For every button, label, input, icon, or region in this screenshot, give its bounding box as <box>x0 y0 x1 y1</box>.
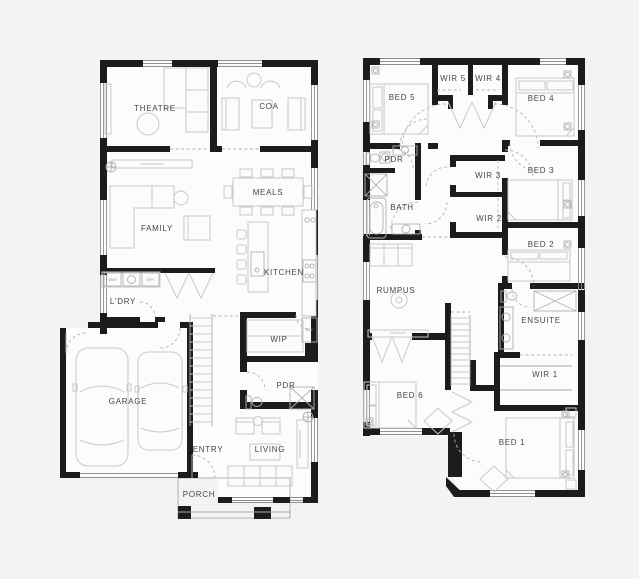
room-label-rumpus: RUMPUS <box>377 286 416 295</box>
room-label-theatre: THEATRE <box>134 104 176 113</box>
room-label-laundry: L'DRY <box>110 297 136 306</box>
first-floor: BED 5 WIR 5 WIR 4 BED 4 PDR WIR 3 BED 3 … <box>363 58 585 497</box>
room-label-bed3: BED 3 <box>528 166 555 175</box>
room-label-bed2: BED 2 <box>528 240 555 249</box>
room-label-meals: MEALS <box>253 188 284 197</box>
room-label-entry: ENTRY <box>193 445 223 454</box>
room-label-powder-first: PDR <box>385 155 404 164</box>
room-label-bed1: BED 1 <box>499 438 526 447</box>
floor-plan-page: THEATRE COA FAMILY MEALS KITCHEN L'DRY W… <box>0 0 639 579</box>
room-label-garage: GARAGE <box>109 397 147 406</box>
room-label-wir5: WIR 5 <box>440 74 466 83</box>
room-label-wip: WIP <box>270 335 287 344</box>
room-label-ensuite: ENSUITE <box>521 316 561 325</box>
appliance-label-washer: W/M <box>108 278 116 282</box>
room-label-coa: COA <box>259 102 278 111</box>
room-label-porch: PORCH <box>183 490 215 499</box>
room-label-bath: BATH <box>390 203 414 212</box>
room-label-kitchen: KITCHEN <box>264 268 304 277</box>
room-label-wir1: WIR 1 <box>532 370 558 379</box>
room-label-bed4: BED 4 <box>528 94 555 103</box>
room-label-family: FAMILY <box>141 224 173 233</box>
room-label-powder-ground: PDR <box>277 381 296 390</box>
appliance-label-fridge: REF <box>306 328 314 332</box>
room-label-living: LIVING <box>255 445 285 454</box>
room-label-bed5: BED 5 <box>389 93 416 102</box>
appliance-label-dryer: DRY <box>146 278 155 282</box>
room-label-wir2: WIR 2 <box>476 214 502 223</box>
room-label-wir4: WIR 4 <box>475 74 501 83</box>
room-label-wir3: WIR 3 <box>475 171 501 180</box>
ground-floor: THEATRE COA FAMILY MEALS KITCHEN L'DRY W… <box>60 60 318 519</box>
floor-plan-canvas: THEATRE COA FAMILY MEALS KITCHEN L'DRY W… <box>0 0 639 579</box>
room-label-bed6: BED 6 <box>397 391 424 400</box>
